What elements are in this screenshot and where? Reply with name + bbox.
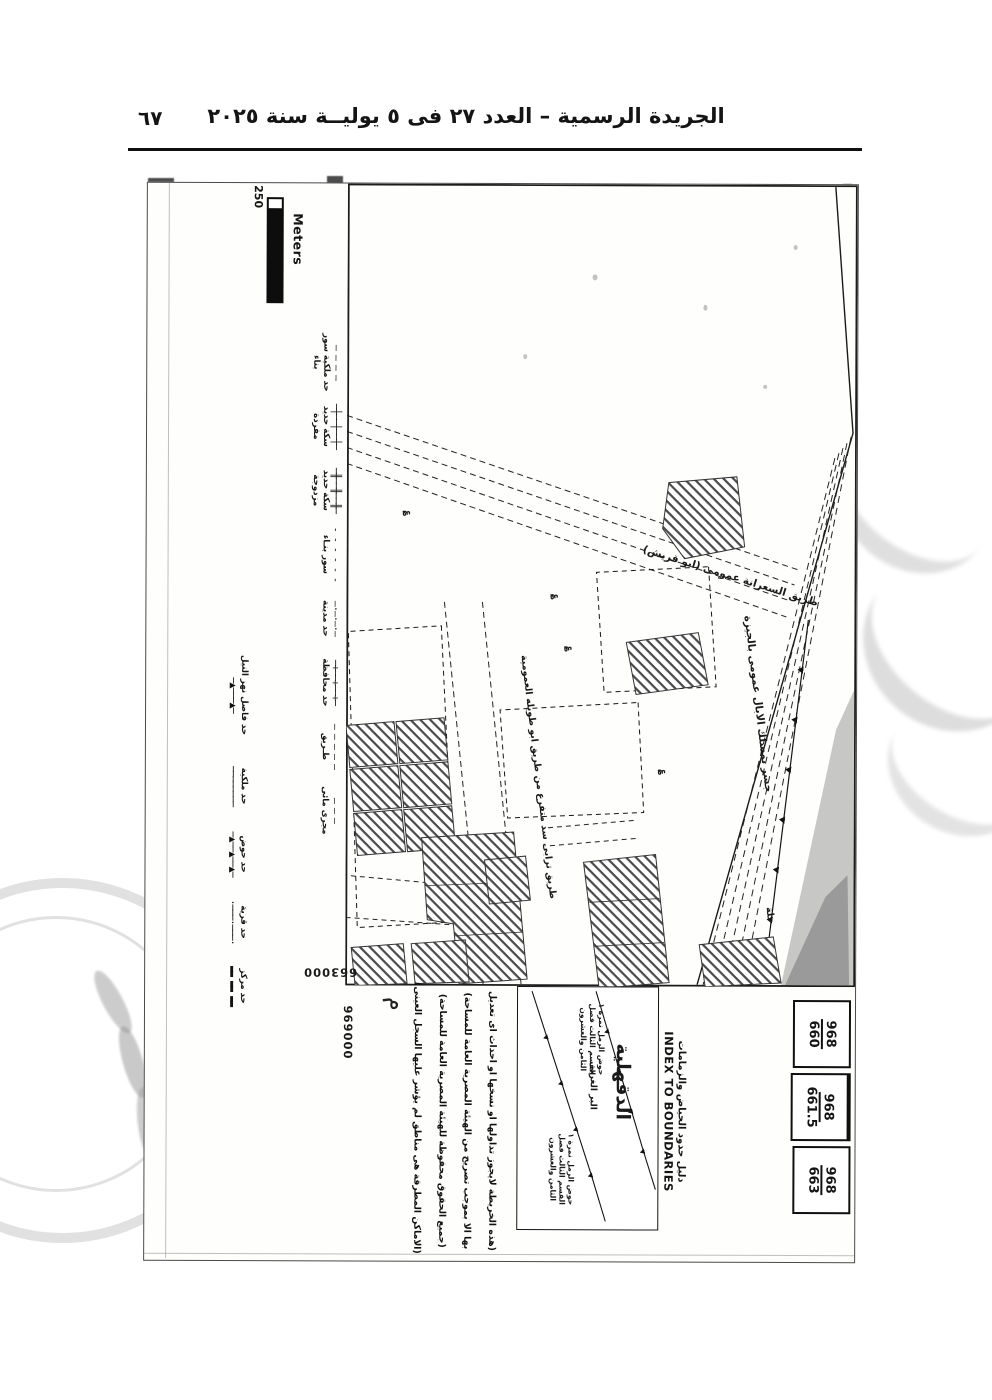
survey-mark: ؏ [564,646,574,651]
basin-note: حوض الرمل نمرة ١ القسم الثالث فصل الثامن… [579,1003,606,1075]
disclaimer-line: (الاماكن المطرقة هى مناطق لم يؤشر عليها … [404,988,430,1254]
legend-item: حد ملكية ──────── [227,755,248,817]
legend-item: حد قرية ·───·───· [227,891,248,953]
survey-mark: ؏ [658,770,668,775]
disclaimer-block: (هذه الخريطة لايجوز تداولها او نسخها او … [404,988,505,1254]
legend-item: ─┼──┼──┼─ سكة حديد مفردة [311,395,341,457]
legend-item: —·—·—·— حد مدينة [320,587,341,649]
legend-item: - - - - - - سور بنـاء [320,523,341,585]
basin-note: حوض الرمل نمرة ١ القسم الثالث فصل الثامن… [548,1133,575,1205]
index-title-arabic: دليل حدود الحياض والزمامات [675,987,687,1237]
scale-bar [266,197,283,303]
survey-mark: ؏ [550,594,560,599]
legend-symbol: — — — — [330,331,341,393]
survey-mark: ؏ [403,511,413,516]
scale-bar-notch [269,199,282,208]
legend-item: ─╫──╫──╫─ سكة حديد مزدوجة [311,459,341,521]
legend-item: ─+──+──+─ حد محافظة [320,651,341,713]
disclaimer-line: (هذه الخريطة لايجوز تداولها او نسخها او … [479,988,505,1254]
index-title-english: INDEX TO BOUNDARIES [661,987,676,1237]
legend-label: حد ملكية سور بناء [311,331,330,393]
northing-coordinate: 969000 [341,1005,355,1059]
sheet-index-box: 968 660 [793,1000,851,1068]
hamlet-label: حلة [763,906,776,924]
sheet-index-box: 968 661.5 [791,1073,851,1141]
disclaimer-line: (جميع الحقوق محفوظة للهيئة المصرية العام… [429,988,455,1254]
sheet-index-box: 968 663 [792,1146,850,1214]
index-to-boundaries-panel: دليل حدود الحياض والزمامات INDEX TO BOUN… [516,986,687,1237]
legend-item: — — — — حد ملكية سور بناء [311,331,341,393]
calligraphy-watermark-stroke [862,675,992,863]
emblem-laurel-leaf [88,966,139,1037]
gazette-page: الجريدة الرسمية – العدد ٢٧ فى ٥ يوليــة … [0,0,992,1400]
scale-bar-unit: Meters [291,213,306,265]
disclaimer-line: بها الا بموجب تصريح من الهيئة المصرية ال… [454,988,480,1254]
sheet-index-strip: 968 660 968 661.5 968 663 [790,1000,851,1214]
legend-item: حد مركز ▬▬ ▬▬ ▬▬ [226,955,247,1017]
legend-item: حد حوض ─▲──▲──▲─ [227,823,248,885]
map-natural-orientation: طريق السعرانة عمومى (ابو قريش) جسر بمسلك… [144,183,858,1260]
index-box: الدقهلية البر الغربى حوض الرمل نمرة ١ ال… [516,986,659,1230]
scale-bar-value: 250 [252,185,265,208]
governorate-name: الدقهلية [612,1043,634,1120]
legend-item: – – – – – طـريق [319,715,340,777]
scanned-map-sheet: طريق السعرانة عمومى (ابو قريش) جسر بمسلك… [143,182,859,1263]
page-number: ٦٧ [138,106,162,130]
legend-item: — — — مجرى مائى [319,779,340,841]
easting-coordinate: 663000 [303,965,357,979]
header-rule [128,148,862,151]
legend-item: حد فاصل نهر النيل ─▲───▲─ [227,649,248,741]
